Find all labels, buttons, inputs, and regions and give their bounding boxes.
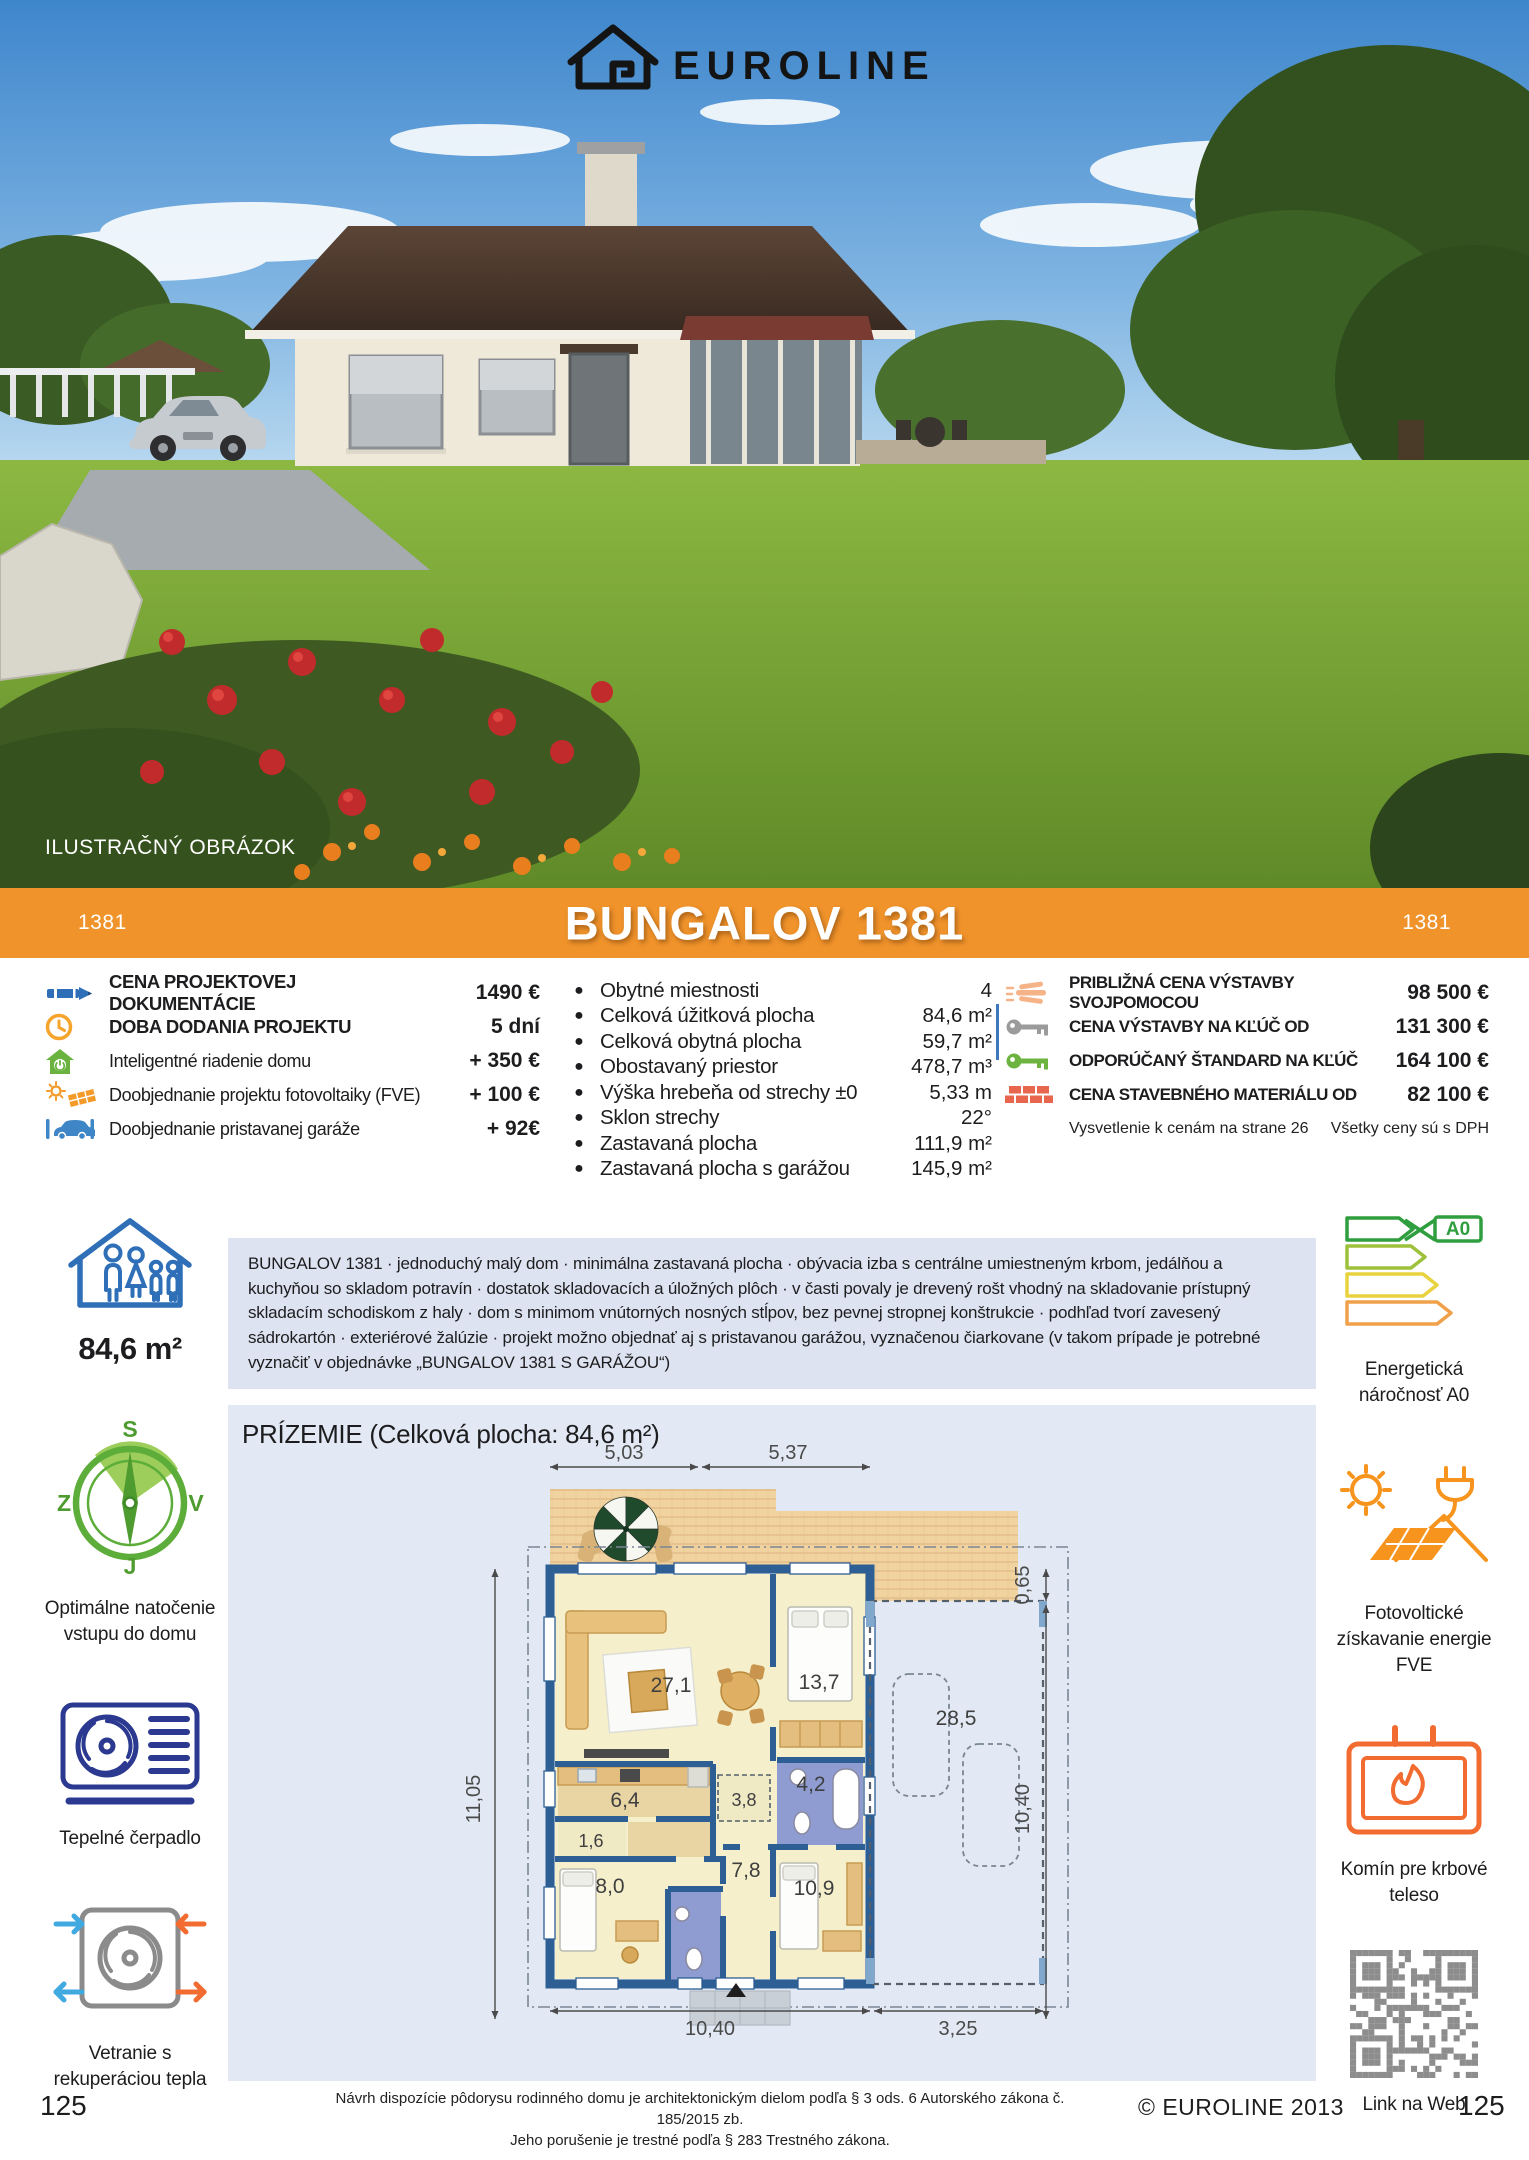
bullet: ● bbox=[558, 982, 600, 1000]
floor-plan-svg: 5,03 5,37 11,05 0,65 10,40 10,40 3,25 27… bbox=[378, 1419, 1138, 2069]
dim-right-top: 0,65 bbox=[1012, 1566, 1034, 1605]
key-gray-icon bbox=[1005, 1015, 1069, 1039]
dim-top-right: 5,37 bbox=[769, 1442, 808, 1464]
room-kitchen-label: 6,4 bbox=[610, 1789, 640, 1812]
price-row: CENA STAVEBNÉHO MATERIÁLU OD 82 100 € bbox=[1005, 1078, 1489, 1112]
room-storage-label: 3,8 bbox=[731, 1790, 756, 1810]
compass-icon: SJZV bbox=[38, 1419, 222, 1582]
key-green-icon bbox=[1005, 1049, 1069, 1073]
column-divider bbox=[996, 1004, 999, 1060]
garage-car-icon bbox=[45, 1117, 109, 1141]
solar-project-icon bbox=[45, 1081, 109, 1109]
spec-row: ●Sklon strechy22° bbox=[558, 1106, 992, 1132]
dim-left: 11,05 bbox=[463, 1775, 485, 1824]
price-row: Doobjednanie pristavanej garáže + 92€ bbox=[45, 1112, 540, 1146]
price-note-right: Všetky ceny sú s DPH bbox=[1331, 1120, 1489, 1138]
spec-row: ●Celková obytná plocha59,7 m² bbox=[558, 1029, 992, 1055]
room-bedroom3-label: 10,9 bbox=[794, 1877, 835, 1900]
spec-row: ●Zastavaná plocha111,9 m² bbox=[558, 1131, 992, 1157]
bullet: ● bbox=[558, 1007, 600, 1025]
room-bath-label: 4,2 bbox=[796, 1773, 825, 1796]
price-notes: Vysvetlenie k cenám na strane 26 Všetky … bbox=[1005, 1120, 1489, 1138]
legal-line-1: Návrh dispozície pôdorysu rodinného domu… bbox=[320, 2088, 1080, 2130]
smart-home-icon bbox=[45, 1048, 109, 1075]
project-code-left: 1381 bbox=[78, 911, 127, 935]
heat-pump-caption: Tepelné čerpadlo bbox=[38, 1826, 222, 1852]
price-row: ODPORÚČANÝ ŠTANDARD NA KĽÚČ 164 100 € bbox=[1005, 1044, 1489, 1078]
project-description: BUNGALOV 1381 · jednoduchý malý dom · mi… bbox=[228, 1238, 1316, 1389]
price-row: Doobjednanie projektu fotovoltaiky (FVE)… bbox=[45, 1078, 540, 1112]
price-row: CENA PROJEKTOVEJ DOKUMENTÁCIE 1490 € bbox=[45, 976, 540, 1010]
bullet: ● bbox=[558, 1135, 600, 1153]
heat-pump-icon bbox=[38, 1699, 222, 1812]
clock-icon bbox=[45, 1013, 109, 1041]
bricks-icon bbox=[1005, 1084, 1069, 1106]
bullet: ● bbox=[558, 1058, 600, 1076]
catalog-page: EUROLINE ILUSTRAČNÝ OBRÁZOK 1381 BUNGALO… bbox=[0, 0, 1529, 2160]
bullet: ● bbox=[558, 1033, 600, 1051]
spec-row: ●Celková úžitková plocha84,6 m² bbox=[558, 1004, 992, 1030]
family-house-icon bbox=[38, 1212, 222, 1315]
compass-west-label: Z bbox=[57, 1490, 71, 1516]
compass-caption: Optimálne natočenie vstupu do domu bbox=[38, 1596, 222, 1647]
photovoltaic-caption: Fotovoltické získavanie energie FVE bbox=[1322, 1601, 1506, 1678]
price-row: Inteligentné riadenie domu + 350 € bbox=[45, 1044, 540, 1078]
pencil-icon bbox=[45, 981, 109, 1005]
spec-row: ●Zastavaná plocha s garážou145,9 m² bbox=[558, 1157, 992, 1183]
sidebar-left: 84,6 m² SJZV Optimálne natočenie vstupu … bbox=[38, 1198, 222, 2092]
dim-top-left: 5,03 bbox=[605, 1442, 644, 1464]
bullet: ● bbox=[558, 1084, 600, 1102]
dim-bottom-left: 10,40 bbox=[685, 2018, 735, 2040]
price-note-left: Vysvetlenie k cenám na strane 26 bbox=[1069, 1120, 1309, 1138]
pricing-left-column: CENA PROJEKTOVEJ DOKUMENTÁCIE 1490 € DOB… bbox=[45, 976, 540, 1146]
compass-south-label: J bbox=[124, 1553, 137, 1577]
page-title: BUNGALOV 1381 bbox=[565, 896, 965, 951]
photovoltaic-icon bbox=[1322, 1460, 1506, 1587]
fireplace-chimney-icon bbox=[1322, 1720, 1506, 1843]
specs-column: ●Obytné miestnosti4 ●Celková úžitková pl… bbox=[558, 978, 992, 1182]
price-row: DOBA DODANIA PROJEKTU 5 dní bbox=[45, 1010, 540, 1044]
spec-row: ●Obytné miestnosti4 bbox=[558, 978, 992, 1004]
floor-area-label: 84,6 m² bbox=[38, 1331, 222, 1367]
brand-name: EUROLINE bbox=[673, 44, 936, 88]
room-hall-label: 7,8 bbox=[731, 1859, 760, 1882]
house-photo: EUROLINE ILUSTRAČNÝ OBRÁZOK bbox=[0, 0, 1529, 888]
room-pantry-label: 1,6 bbox=[578, 1831, 603, 1851]
price-row: PRIBLIŽNÁ CENA VÝSTAVBY SVOJPOMOCOU 98 5… bbox=[1005, 976, 1489, 1010]
compass-north-label: S bbox=[122, 1419, 137, 1442]
title-banner: 1381 BUNGALOV 1381 1381 bbox=[0, 888, 1529, 958]
ventilation-icon bbox=[38, 1894, 222, 2027]
bullet: ● bbox=[558, 1109, 600, 1127]
qr-code bbox=[1322, 1950, 1506, 2078]
price-row: CENA VÝSTAVBY NA KĽÚČ OD 131 300 € bbox=[1005, 1010, 1489, 1044]
ventilation-caption: Vetranie s rekuperáciou tepla bbox=[38, 2041, 222, 2092]
room-garage-label: 28,5 bbox=[936, 1707, 977, 1730]
energy-label-icon: A0 bbox=[1322, 1212, 1506, 1343]
sidebar-right: A0 Energetická náročnosť A0 Fotovoltické… bbox=[1322, 1198, 1506, 2118]
spec-row: ●Obostavaný priestor478,7 m³ bbox=[558, 1055, 992, 1081]
page-number-right: 125 bbox=[1458, 2090, 1505, 2122]
energy-class-badge: A0 bbox=[1446, 1219, 1470, 1240]
bullet: ● bbox=[558, 1160, 600, 1178]
chimney-caption: Komín pre krbové teleso bbox=[1322, 1857, 1506, 1908]
house-photo-illustration: EUROLINE ILUSTRAČNÝ OBRÁZOK bbox=[0, 0, 1529, 888]
legal-line-2: Jeho porušenie je trestné podľa § 283 Tr… bbox=[320, 2130, 1080, 2151]
energy-caption: Energetická náročnosť A0 bbox=[1322, 1357, 1506, 1408]
project-code-right: 1381 bbox=[1402, 911, 1451, 935]
compass-east-label: V bbox=[188, 1490, 204, 1516]
floor-plan-panel: PRÍZEMIE (Celková plocha: 84,6 m²) bbox=[228, 1405, 1316, 2081]
dim-bottom-right: 3,25 bbox=[939, 2018, 978, 2040]
room-bedroom1-label: 13,7 bbox=[799, 1671, 840, 1694]
hand-icon bbox=[1005, 980, 1069, 1006]
dim-right-bottom: 10,40 bbox=[1012, 1784, 1034, 1834]
copyright: © EUROLINE 2013 bbox=[1138, 2094, 1344, 2121]
photo-caption: ILUSTRAČNÝ OBRÁZOK bbox=[45, 836, 296, 859]
spec-row: ●Výška hrebeňa od strechy ±05,33 m bbox=[558, 1080, 992, 1106]
page-number-left: 125 bbox=[40, 2090, 87, 2122]
legal-text: Návrh dispozície pôdorysu rodinného domu… bbox=[320, 2088, 1080, 2151]
pricing-right-column: PRIBLIŽNÁ CENA VÝSTAVBY SVOJPOMOCOU 98 5… bbox=[1005, 976, 1489, 1138]
room-bedroom2-label: 8,0 bbox=[595, 1875, 624, 1898]
room-living-label: 27,1 bbox=[651, 1674, 692, 1697]
